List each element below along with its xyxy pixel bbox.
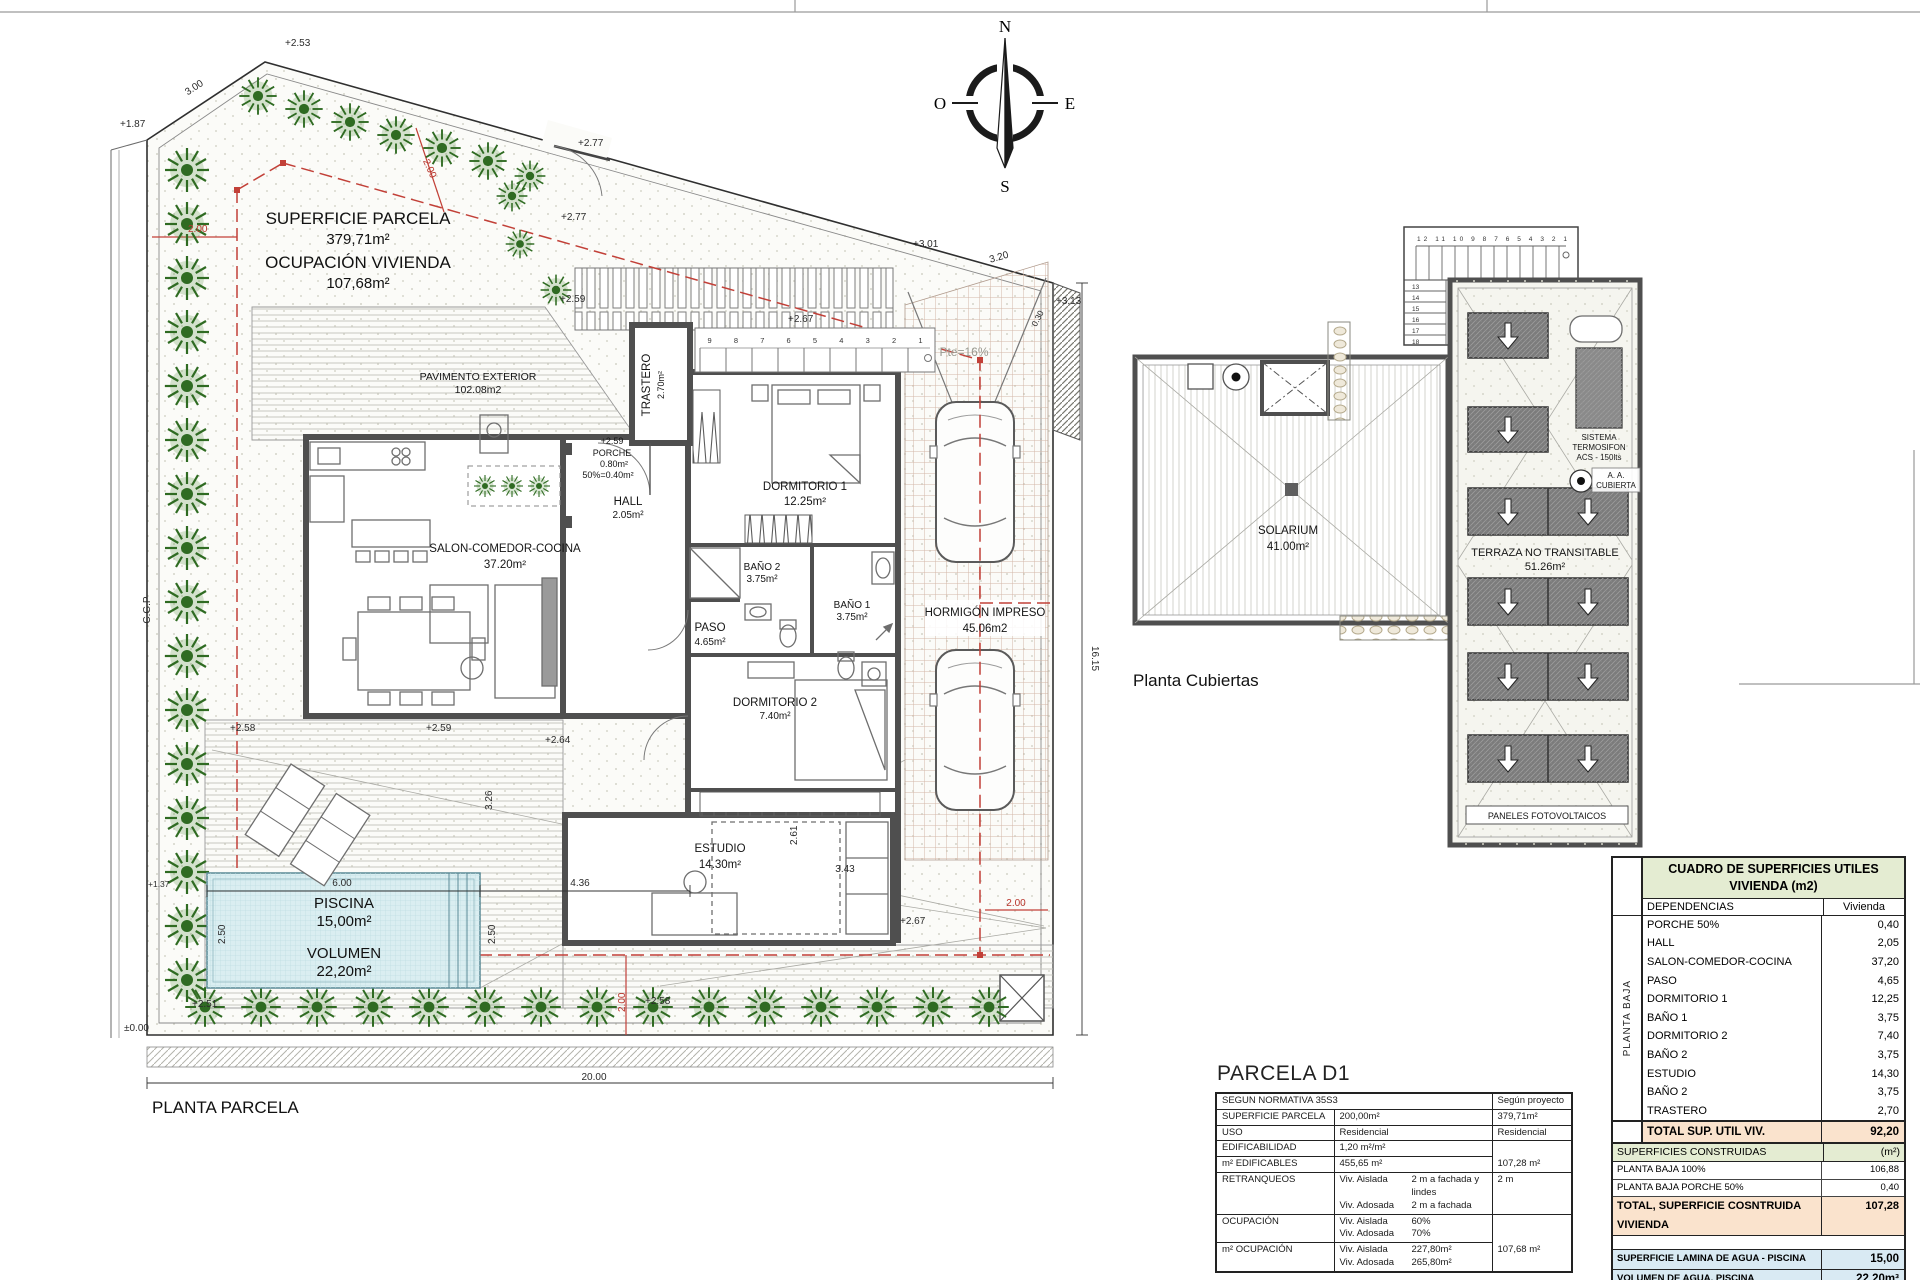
row-norm: 455,65 m² (1334, 1157, 1492, 1173)
dim-300: 3.00 (183, 78, 206, 98)
porche-label: PORCHE (593, 448, 632, 458)
hall-label: HALL (614, 496, 643, 508)
ocupacion-label: OCUPACIÓN VIVIENDA (265, 253, 451, 272)
estudio-label: ESTUDIO (694, 843, 745, 855)
table-row: TRASTERO2,70 (1643, 1102, 1904, 1121)
solarium: SOLARIUM 41.00m² (1135, 322, 1450, 640)
row-proj (1492, 1141, 1572, 1157)
row-label: m² OCUPACIÓN (1216, 1243, 1334, 1272)
cuadro-title: CUADRO DE SUPERFICIES UTILES VIVIENDA (m… (1643, 858, 1904, 899)
superficie-parcela-label: SUPERFICIE PARCELA (266, 209, 452, 228)
car-2 (930, 650, 1020, 810)
compass-o: O (934, 94, 946, 113)
parcela-header-right: Según proyecto (1492, 1093, 1572, 1109)
dim-200c: 2.00 (1006, 898, 1026, 909)
dim-000: ±0.00 (124, 1023, 149, 1034)
dorm2-label: DORMITORIO 2 (733, 697, 817, 709)
bano2-label: BAÑO 2 (744, 560, 781, 573)
salon-area: 37.20m² (484, 559, 526, 571)
col-vivienda: Vivienda (1823, 899, 1904, 915)
roof-stair-n14: 14 (1412, 295, 1420, 302)
porche-area: 0.80m² (600, 459, 628, 469)
dim-137: +1.37 (148, 879, 170, 889)
pendiente-label: Pte=16% (939, 345, 988, 359)
aa-line2: CUBIERTA (1596, 481, 1636, 490)
row-norm: Residencial (1334, 1125, 1492, 1141)
porche-pct: 50%=0.40m² (582, 470, 633, 480)
dorm1-area: 12.25m² (784, 496, 826, 508)
pavimento-value: 102.08m2 (455, 384, 502, 396)
terraza-area: 51.26m² (1525, 561, 1566, 573)
dorm1-label: DORMITORIO 1 (763, 481, 847, 493)
table-row: m² EDIFICABLES 455,65 m² 107,28 m² (1216, 1157, 1572, 1173)
row-proj (1492, 1214, 1572, 1243)
salon-label: SALON-COMEDOR-COCINA (429, 543, 581, 555)
pool-label: PISCINA (314, 895, 374, 912)
compass-s: S (1000, 177, 1009, 196)
total-construida-row: TOTAL, SUPERFICIE COSNTRUIDA VIVIENDA 10… (1613, 1197, 1904, 1236)
row-label: SUPERFICIE PARCELA (1216, 1109, 1334, 1125)
parcela-table: PARCELA D1 SEGUN NORMATIVA 35S3 Según pr… (1215, 1062, 1573, 1273)
planta-baja-side: PLANTA BAJA (1613, 916, 1643, 1121)
solar-panel-5 (1468, 653, 1628, 700)
dim-313: +3.13 (1056, 296, 1082, 307)
dorm2-area: 7.40m² (759, 711, 791, 722)
cuadro-header: DEPENDENCIAS Vivienda (1643, 899, 1904, 916)
sistema-line1: SISTEMA (1581, 433, 1617, 442)
dim-1615: 16.15 (1089, 646, 1100, 671)
table-row: BAÑO 23,75 (1643, 1083, 1904, 1102)
aa-line1: A. A. (1608, 471, 1625, 480)
row-proj: 379,71m² (1492, 1109, 1572, 1125)
terraza: SISTEMA TERMOSIFON ACS - 150lts A. A. CU… (1450, 280, 1640, 845)
dim-264: +2.64 (545, 735, 571, 746)
paso-area: 4.65m² (694, 637, 726, 648)
row-proj: Residencial (1492, 1125, 1572, 1141)
cgp-label: C.G.P (142, 596, 153, 624)
table-row: OCUPACIÓN Viv. Aislada60% Viv. Adosada70… (1216, 1214, 1572, 1243)
row-norm: Viv. Aislada60% Viv. Adosada70% (1334, 1214, 1492, 1243)
solar-panel-4 (1468, 578, 1628, 625)
paso-label: PASO (694, 622, 725, 634)
dim-267a: +2.67 (788, 314, 814, 325)
dim-259a: +2.59 (560, 294, 586, 305)
total-util-row: TOTAL SUP. UTIL VIV. 92,20 (1643, 1120, 1904, 1144)
roof-stair-n13: 13 (1412, 284, 1420, 291)
table-row: HALL2,05 (1643, 934, 1904, 953)
parcela-table-title: PARCELA D1 (1217, 1062, 1573, 1086)
table-row: BAÑO 23,75 (1643, 1046, 1904, 1065)
row-norm: Viv. Aislada2 m a fachada y lindes Viv. … (1334, 1173, 1492, 1214)
estudio-walls (565, 815, 893, 943)
spacer-row (1613, 1236, 1904, 1250)
dim-436: 4.36 (570, 878, 590, 889)
pergola-slats (575, 268, 893, 330)
bano1-label: BAÑO 1 (834, 598, 871, 611)
parcela-header-left: SEGUN NORMATIVA 35S3 (1216, 1093, 1492, 1109)
pool-area: 15,00m² (316, 913, 371, 930)
dim-277a: +2.77 (578, 138, 604, 149)
dim-187: +1.87 (120, 119, 146, 130)
hormigon-value: 45.06m2 (963, 623, 1008, 635)
hormigon-label: HORMIGÓN IMPRESO (925, 606, 1046, 619)
dim-320: 3.20 (988, 250, 1010, 266)
roof-plan: 12 11 10 9 8 7 6 5 4 3 2 1 13 14 15 16 1… (1133, 227, 1640, 845)
wardrobe-3 (700, 792, 880, 816)
table-row: DORMITORIO 112,25 (1643, 990, 1904, 1009)
sistema-line3: ACS - 150lts (1577, 453, 1622, 462)
table-row: SUPERFICIE PARCELA 200,00m² 379,71m² (1216, 1109, 1572, 1125)
superficies-construidas-header: SUPERFICIES CONSTRUIDAS (m²) (1613, 1144, 1904, 1162)
estudio-area: 14.30m² (699, 859, 741, 871)
wardrobe-1 (693, 390, 720, 463)
dim-261: 2.61 (789, 825, 800, 845)
dim-2000: 20.00 (581, 1072, 606, 1083)
dim-267b: +2.67 (900, 916, 926, 927)
table-row: PLANTA BAJA PORCHE 50%0,40 (1613, 1180, 1904, 1198)
wardrobe-2 (745, 515, 812, 543)
pavimento-label: PAVIMENTO EXTERIOR (420, 371, 537, 383)
dim-326: 3.26 (484, 790, 495, 810)
dim-253: +2.53 (285, 38, 311, 49)
cuadro-superficies-table: CUADRO DE SUPERFICIES UTILES VIVIENDA (m… (1611, 856, 1906, 1280)
table-row: USO Residencial Residencial (1216, 1125, 1572, 1141)
paneles-label: PANELES FOTOVOLTAICOS (1488, 811, 1606, 821)
car-1 (930, 402, 1020, 562)
row-label: EDIFICABILIDAD (1216, 1141, 1334, 1157)
table-row: m² OCUPACIÓN Viv. Aislada227,80m² Viv. A… (1216, 1243, 1572, 1272)
table-row: DORMITORIO 27,40 (1643, 1027, 1904, 1046)
compass: N S O E (934, 17, 1075, 196)
pool-vol-label: VOLUMEN (307, 945, 381, 962)
solar-panel-2 (1468, 407, 1548, 452)
table-row: BAÑO 13,75 (1643, 1009, 1904, 1028)
ocupacion-value: 107,68m² (326, 275, 389, 292)
roof-stair-n16: 16 (1412, 317, 1420, 324)
row-norm: 1,20 m²/m² (1334, 1141, 1492, 1157)
dim-343: 3.43 (835, 864, 855, 875)
trastero-label: TRASTERO (641, 354, 653, 417)
row-label: RETRANQUEOS (1216, 1173, 1334, 1214)
architectural-sheet: 9 8 7 6 5 4 3 2 1 (0, 0, 1920, 1280)
row-label: OCUPACIÓN (1216, 1214, 1334, 1243)
dim-259b: +2.59 (426, 723, 452, 734)
table-row: SALON-COMEDOR-COCINA37,20 (1643, 953, 1904, 972)
dim-600: 6.00 (332, 878, 352, 889)
table-row: ESTUDIO14,30 (1643, 1065, 1904, 1084)
solarium-label: SOLARIUM (1258, 525, 1318, 537)
thermosiphon-tank (1570, 316, 1622, 342)
dim-251: +2.51 (192, 999, 218, 1010)
dim-258b: +2.58 (645, 996, 671, 1007)
row-norm: Viv. Aislada227,80m² Viv. Adosada265,80m… (1334, 1243, 1492, 1272)
compass-n: N (999, 17, 1011, 36)
terraza-label: TERRAZA NO TRANSITABLE (1471, 547, 1619, 559)
table-row: PASO4,65 (1643, 972, 1904, 991)
table-row: PORCHE 50%0,40 (1643, 916, 1904, 935)
sistema-line2: TERMOSIFON (1572, 443, 1626, 452)
table-row: EDIFICABILIDAD 1,20 m²/m² (1216, 1141, 1572, 1157)
table-row: PLANTA BAJA 100%106,88 (1613, 1162, 1904, 1180)
roof-stair-n17: 17 (1412, 328, 1420, 335)
dim-301: +3.01 (913, 239, 939, 250)
row-proj: 2 m (1492, 1173, 1572, 1214)
row-norm: 200,00m² (1334, 1109, 1492, 1125)
dim-200d: 2.00 (617, 992, 628, 1012)
trastero-area: 2.70m² (656, 371, 666, 399)
col-dependencias: DEPENDENCIAS (1643, 899, 1823, 915)
table-row: RETRANQUEOS Viv. Aislada2 m a fachada y … (1216, 1173, 1572, 1214)
exterior-stairs: 9 8 7 6 5 4 3 2 1 (695, 328, 935, 372)
roof-title: Planta Cubiertas (1133, 671, 1259, 690)
bano1-area: 3.75m² (836, 612, 868, 623)
dim-258a: +2.58 (230, 723, 256, 734)
pool-vol-value: 22,20m² (316, 963, 371, 980)
solar-panel-3 (1468, 488, 1628, 535)
solar-panel-1 (1468, 313, 1548, 358)
row-label: m² EDIFICABLES (1216, 1157, 1334, 1173)
hall-area: 2.05m² (612, 510, 644, 521)
plan-title: PLANTA PARCELA (152, 1098, 299, 1117)
porche-elev: +2.59 (601, 436, 624, 446)
solarium-area: 41.00m² (1267, 541, 1309, 553)
table-row: SEGUN NORMATIVA 35S3 Según proyecto (1216, 1093, 1572, 1109)
row-proj: 107,68 m² (1492, 1243, 1572, 1272)
roof-stair-n15: 15 (1412, 306, 1420, 313)
roof-stair-n18: 18 (1412, 339, 1420, 346)
dim-200a: 2.00 (188, 224, 208, 235)
bano2-area: 3.75m² (746, 574, 778, 585)
dim-250a: 2.50 (217, 924, 228, 944)
dim-250b: 2.50 (487, 924, 498, 944)
stone-path-2 (1340, 616, 1450, 640)
piscina-volumen-row: VOLUMEN DE AGUA, PISCINA 22,20m³ (1613, 1270, 1904, 1280)
superficie-parcela-value: 379,71m² (326, 231, 389, 248)
solar-panel-6 (1468, 735, 1628, 782)
piscina-superficie-row: SUPERFICIE LAMINA DE AGUA - PISCINA 15,0… (1613, 1250, 1904, 1270)
dim-277b: +2.77 (561, 212, 587, 223)
sidewalk (147, 1047, 1053, 1067)
row-proj: 107,28 m² (1492, 1157, 1572, 1173)
row-label: USO (1216, 1125, 1334, 1141)
compass-e: E (1065, 94, 1075, 113)
stone-path-1 (1328, 322, 1350, 420)
